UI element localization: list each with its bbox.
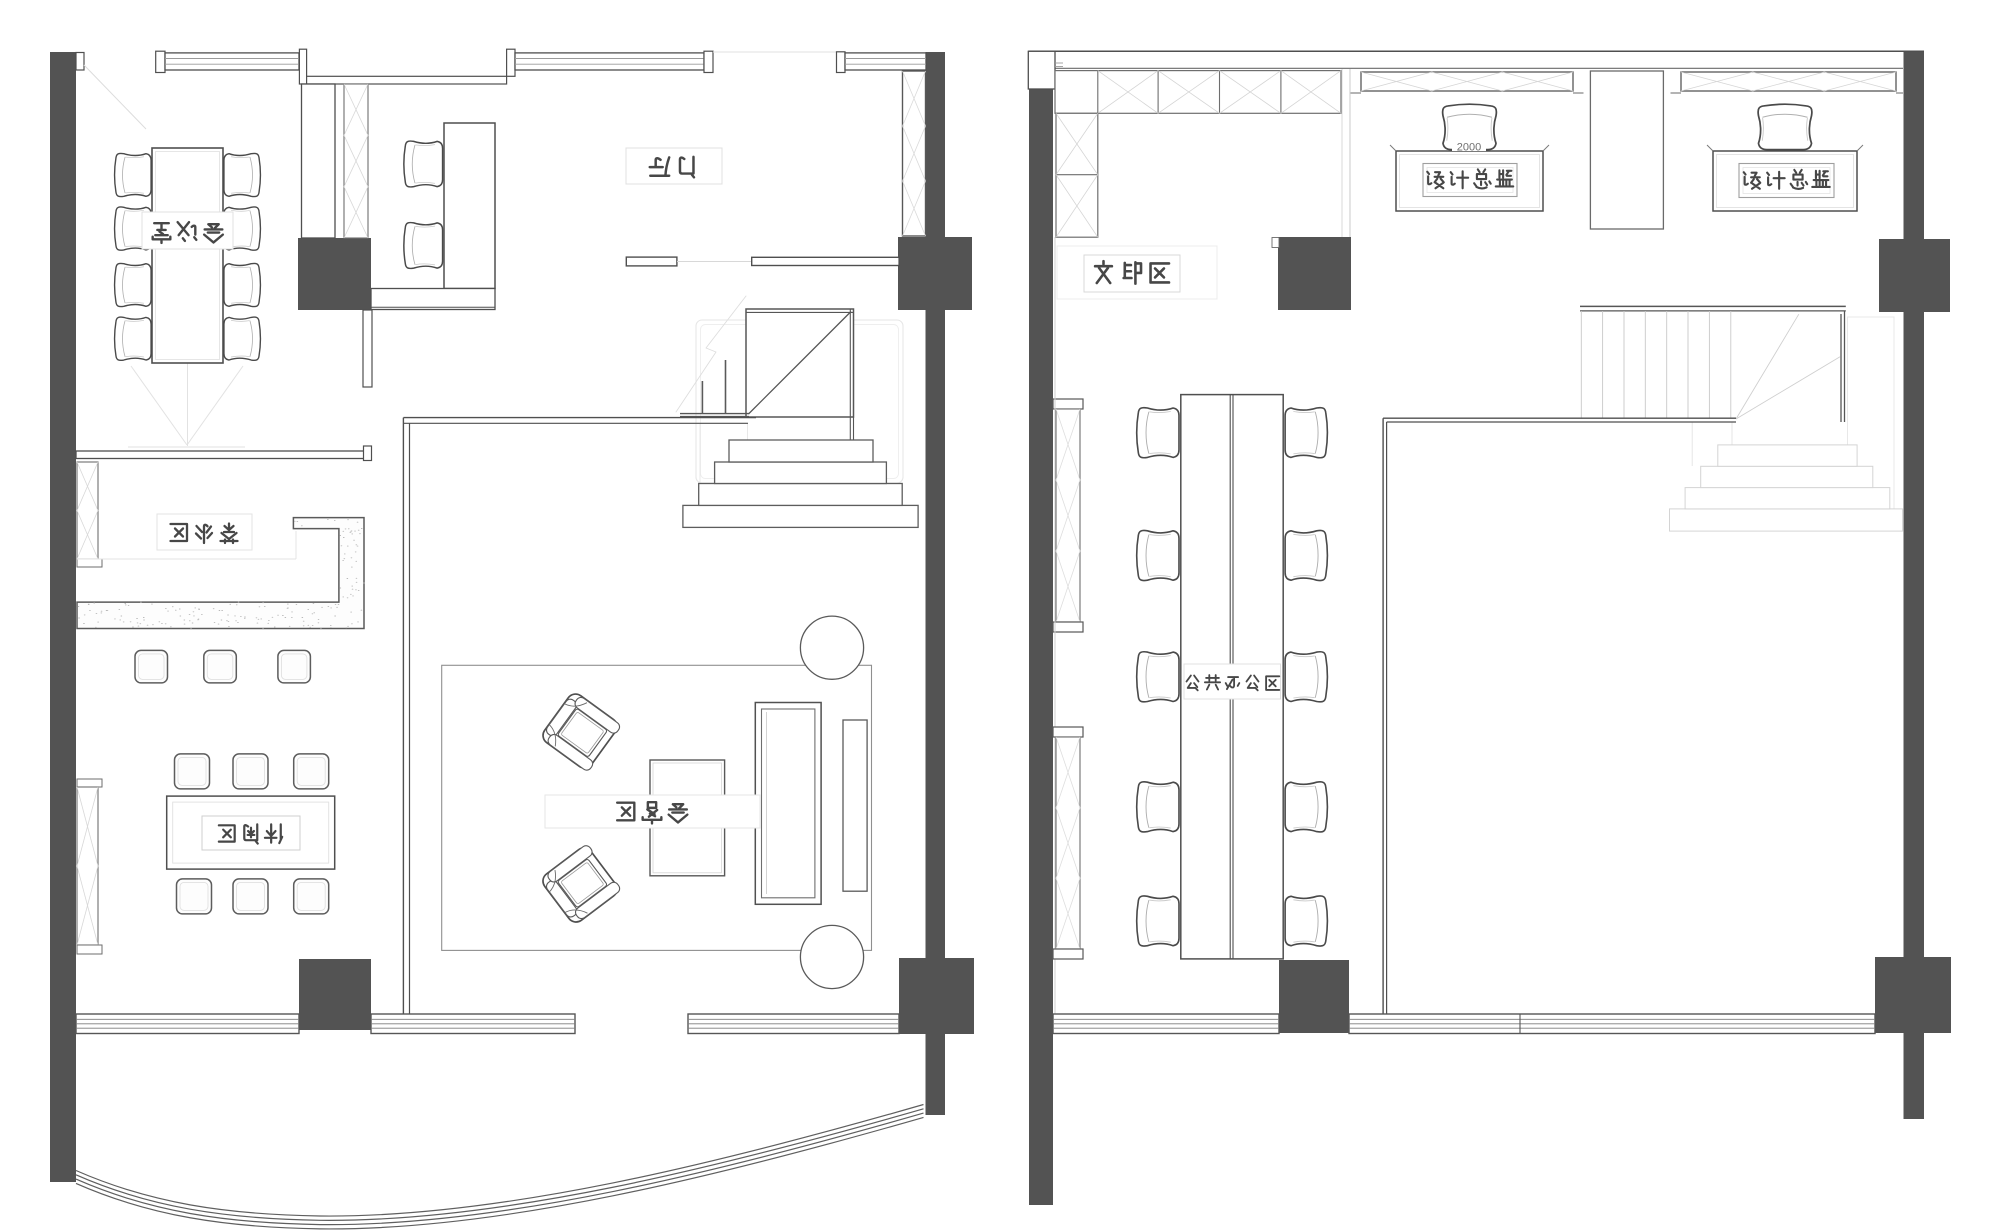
svg-text:2000: 2000 (1457, 142, 1481, 154)
